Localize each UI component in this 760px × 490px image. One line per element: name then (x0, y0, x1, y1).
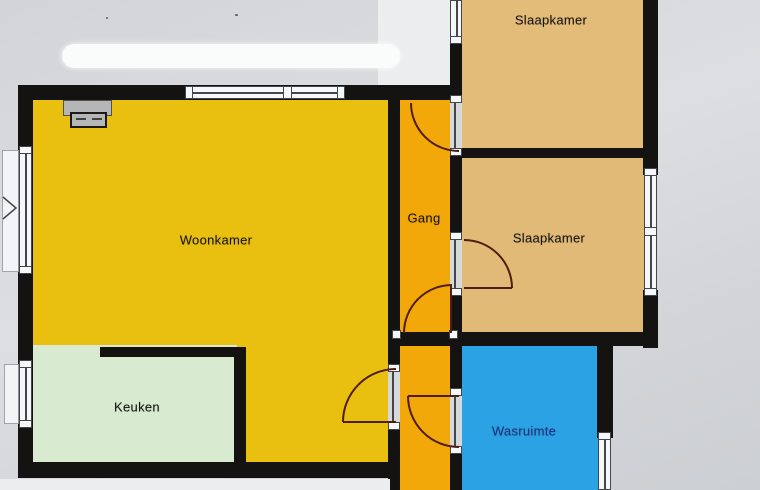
door-arc-slaapkamer1 (411, 103, 459, 151)
room-label-wasruimte: Wasruimte (492, 424, 556, 439)
room-label-slaapkamer-1: Slaapkamer (515, 13, 587, 28)
room-label-slaapkamer-2: Slaapkamer (513, 231, 585, 246)
door-arc-wasruimte (408, 396, 459, 447)
floorplan-photo: Woonkamer Gang Slaapkamer Slaapkamer Keu… (0, 0, 760, 490)
room-label-woonkamer: Woonkamer (180, 233, 253, 248)
door-arc-hal (404, 285, 452, 333)
door-arc-slaapkamer2 (464, 240, 512, 288)
door-arcs-layer (0, 0, 760, 490)
room-label-keuken: Keuken (114, 400, 160, 415)
room-label-gang: Gang (407, 211, 440, 226)
background-bottom-strip (0, 479, 390, 490)
door-arc-woonkamer (343, 369, 396, 422)
window-opening-chevron (3, 197, 16, 219)
